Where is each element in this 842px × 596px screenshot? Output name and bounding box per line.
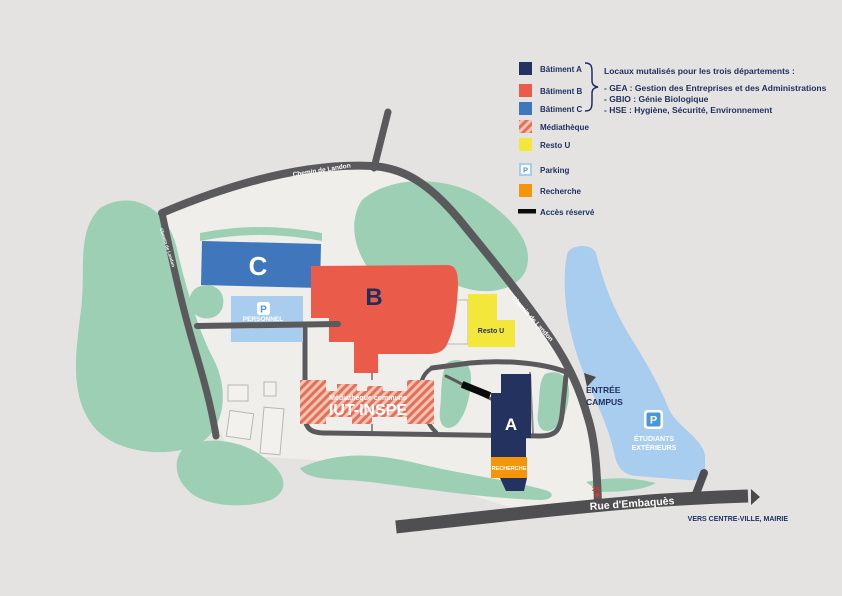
- legend-label-mediatheque: Médiathèque: [540, 123, 589, 132]
- mediatheque-top-tab: [367, 386, 383, 392]
- building-a-label: A: [505, 415, 517, 434]
- legend-shared-line-hse: - HSE : Hygiène, Sécurité, Environnement: [604, 105, 772, 115]
- legend-shared-line-gea: - GEA : Gestion des Entreprises et des A…: [604, 83, 827, 93]
- mediatheque-left-wing: [300, 380, 326, 424]
- legend-swatch-acces-reserve: [518, 209, 536, 214]
- legend-label-resto-u: Resto U: [540, 141, 570, 150]
- campus-map: P P C B A Resto U RECHERCHE Médiathèque …: [0, 0, 842, 596]
- green-area-b-right: [428, 226, 469, 268]
- legend-parking-icon-letter: P: [523, 166, 528, 175]
- parking-personnel-icon: P: [257, 302, 270, 316]
- legend-shared-title: Locaux mutalisés pour les trois départem…: [604, 66, 795, 76]
- map-canvas: P P C B A Resto U RECHERCHE Médiathèque …: [0, 0, 842, 596]
- mediatheque-right-wing: [407, 380, 434, 424]
- entrance-label-2: CAMPUS: [586, 397, 623, 407]
- legend-label-batiment-b: Bâtiment B: [540, 87, 582, 96]
- footprint-outline: [264, 382, 276, 396]
- mediatheque-top-tab: [337, 384, 357, 392]
- parking-etudiants-label-2: EXTÉRIEURS: [632, 443, 677, 452]
- legend-label-acces-reserve: Accès réservé: [540, 208, 595, 217]
- mediatheque-label: Médiathèque commune: [329, 395, 407, 402]
- parking-etudiants-icon: P: [644, 410, 663, 429]
- footprint-outline: [226, 410, 253, 439]
- legend-label-recherche: Recherche: [540, 187, 581, 196]
- legend-swatch-resto-u: [519, 138, 532, 151]
- legend-label-parking: Parking: [540, 166, 569, 175]
- legend-swatch-batiment-c: [519, 102, 532, 115]
- entrance-label-1: ENTRÉE: [586, 385, 621, 395]
- legend-label-batiment-c: Bâtiment C: [540, 105, 582, 114]
- recherche-label: RECHERCHE: [492, 466, 527, 472]
- legend-swatch-recherche: [519, 184, 532, 197]
- legend-swatch-batiment-b: [519, 84, 532, 97]
- parking-etudiants-label-1: ÉTUDIANTS: [634, 434, 674, 443]
- footprint-outline: [228, 385, 248, 401]
- legend-label-batiment-a: Bâtiment A: [540, 65, 582, 74]
- legend-swatch-mediatheque: [519, 120, 532, 133]
- p-icon-letter: P: [260, 305, 267, 316]
- green-area-personnel: [189, 285, 223, 318]
- iut-inspe-label: IUT-INSPE: [329, 402, 408, 419]
- street-number-marker: [595, 493, 599, 497]
- destination-label: VERS CENTRE-VILLE, MAIRIE: [688, 516, 789, 523]
- parking-personnel-label: PERSONNEL: [243, 316, 283, 323]
- resto-u-label: Resto U: [478, 328, 504, 335]
- footprint-outline: [260, 407, 284, 455]
- building-c-label: C: [249, 251, 268, 281]
- building-b-label: B: [365, 284, 382, 311]
- p-icon-letter: P: [650, 415, 657, 427]
- road-personnel: [197, 324, 338, 326]
- street-number: 24: [592, 486, 600, 493]
- legend-shared-line-gbio: - GBIO : Génie Biologique: [604, 94, 709, 104]
- legend-swatch-batiment-a: [519, 62, 532, 75]
